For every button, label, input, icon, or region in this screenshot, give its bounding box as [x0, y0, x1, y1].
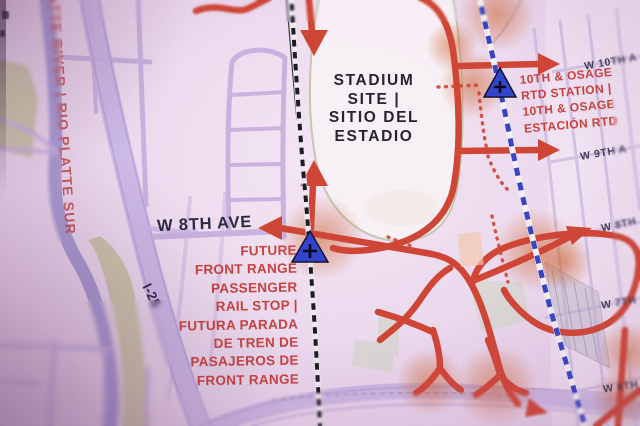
map-photo: ATTE RIVER | RIO PLATTE SUR STADIUM SITE… [0, 0, 640, 426]
stadium-lot [364, 190, 440, 226]
photo-speck [2, 11, 9, 19]
peach-parcel [457, 232, 483, 267]
map-svg [0, 0, 640, 426]
photo-speck [0, 30, 5, 37]
arrow-left-icon [258, 216, 282, 240]
